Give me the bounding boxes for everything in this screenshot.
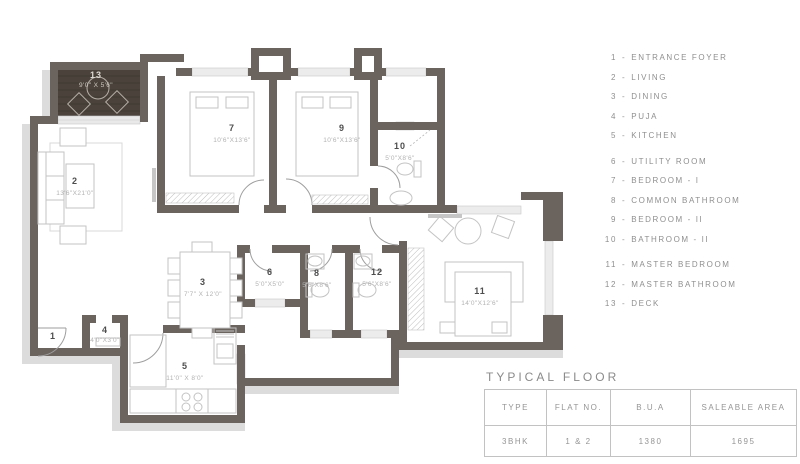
room-label-2: 2 xyxy=(72,176,78,186)
armchair xyxy=(60,226,86,244)
legend-group-1: 1-ENTRANCE FOYER 2-LIVING 3-DINING 4-PUJ… xyxy=(600,48,798,146)
tv-panel xyxy=(152,168,156,202)
legend-item-4: 4-PUJA xyxy=(600,107,798,127)
room-label-13: 13 xyxy=(90,70,102,80)
legend-item-6: 6-UTILITY ROOM xyxy=(600,152,798,172)
room-label-1: 1 xyxy=(50,331,56,341)
svg-text:9'0" X 5'6": 9'0" X 5'6" xyxy=(79,82,113,89)
header-saleable-area: SALEABLE AREA xyxy=(691,390,797,426)
legend-item-5: 5-KITCHEN xyxy=(600,126,798,146)
room-label-11: 11 xyxy=(474,286,486,296)
header-flat-no: FLAT NO. xyxy=(547,390,611,426)
room-legend: 1-ENTRANCE FOYER 2-LIVING 3-DINING 4-PUJ… xyxy=(600,48,798,320)
legend-item-9: 9-BEDROOM - II xyxy=(600,210,798,230)
legend-item-13: 13-DECK xyxy=(600,294,798,314)
svg-text:5'0"X5'0": 5'0"X5'0" xyxy=(255,281,285,288)
room-label-9: 9 xyxy=(339,123,345,133)
legend-item-12: 12-MASTER BATHROOM xyxy=(600,275,798,295)
wardrobe-11 xyxy=(408,248,424,330)
cell-type: 3BHK xyxy=(485,426,547,457)
cell-flat-no: 1 & 2 xyxy=(547,426,611,457)
svg-text:4'0"X3'0": 4'0"X3'0" xyxy=(90,337,120,344)
room-label-8: 8 xyxy=(314,268,320,278)
svg-text:7'7" X 12'0": 7'7" X 12'0" xyxy=(184,291,222,298)
table-header-row: TYPE FLAT NO. B.U.A SALEABLE AREA xyxy=(485,390,797,426)
coffee-table xyxy=(66,164,94,208)
legend-item-2: 2-LIVING xyxy=(600,68,798,88)
cell-bua: 1380 xyxy=(611,426,691,457)
header-type: TYPE xyxy=(485,390,547,426)
svg-text:10'6"X13'6": 10'6"X13'6" xyxy=(323,137,361,144)
legend-item-3: 3-DINING xyxy=(600,87,798,107)
dining-table xyxy=(180,252,230,328)
legend-group-2: 6-UTILITY ROOM 7-BEDROOM - I 8-COMMON BA… xyxy=(600,152,798,250)
legend-item-10: 10-BATHROOM - II xyxy=(600,230,798,250)
svg-text:14'0"X12'6": 14'0"X12'6" xyxy=(461,300,499,307)
spec-table: TYPE FLAT NO. B.U.A SALEABLE AREA 3BHK 1… xyxy=(484,389,797,457)
armchair xyxy=(60,128,86,146)
legend-group-3: 11-MASTER BEDROOM 12-MASTER BATHROOM 13-… xyxy=(600,255,798,314)
tv-console xyxy=(428,214,462,218)
wardrobe-9 xyxy=(312,195,368,204)
room-label-12: 12 xyxy=(371,267,383,277)
room-label-4: 4 xyxy=(102,325,108,335)
room-label-3: 3 xyxy=(200,277,206,287)
svg-text:13'6"X21'0": 13'6"X21'0" xyxy=(56,190,94,197)
header-bua: B.U.A xyxy=(611,390,691,426)
table-data-row: 3BHK 1 & 2 1380 1695 xyxy=(485,426,797,457)
svg-text:10'6"X13'6": 10'6"X13'6" xyxy=(213,137,251,144)
cell-saleable-area: 1695 xyxy=(691,426,797,457)
typical-floor-section: TYPICAL FLOOR TYPE FLAT NO. B.U.A SALEAB… xyxy=(484,370,796,457)
room-label-5: 5 xyxy=(182,361,188,371)
room-label-6: 6 xyxy=(267,267,273,277)
legend-item-8: 8-COMMON BATHROOM xyxy=(600,191,798,211)
legend-item-7: 7-BEDROOM - I xyxy=(600,171,798,191)
svg-text:5'6"X8'6": 5'6"X8'6" xyxy=(362,281,392,288)
legend-item-1: 1-ENTRANCE FOYER xyxy=(600,48,798,68)
room-label-10: 10 xyxy=(394,141,406,151)
table-title: TYPICAL FLOOR xyxy=(486,370,796,384)
svg-text:5'6"X8'6": 5'6"X8'6" xyxy=(302,282,332,289)
svg-text:5'0"X8'6": 5'0"X8'6" xyxy=(385,155,415,162)
room-label-7: 7 xyxy=(229,123,235,133)
svg-text:11'0" X 8'0": 11'0" X 8'0" xyxy=(166,375,204,382)
floor-plan-page: 1 2 13'6"X21'0" 3 7'7" X 12'0" 4 4'0"X3'… xyxy=(0,0,800,464)
legend-item-11: 11-MASTER BEDROOM xyxy=(600,255,798,275)
wardrobe-7 xyxy=(166,193,234,203)
